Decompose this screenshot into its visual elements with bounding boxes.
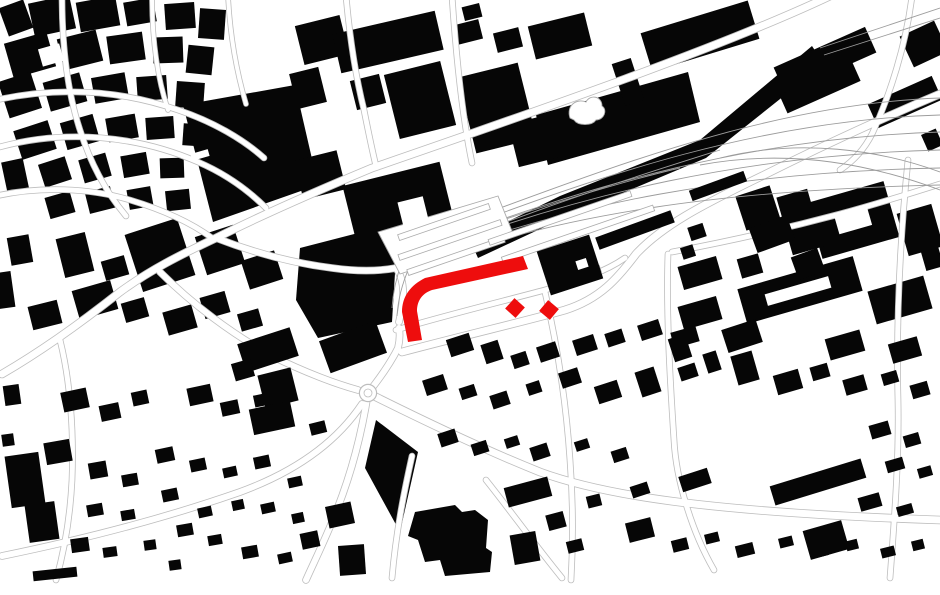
site-plan-map bbox=[0, 0, 940, 595]
figure-ground-map-canvas bbox=[0, 0, 940, 595]
